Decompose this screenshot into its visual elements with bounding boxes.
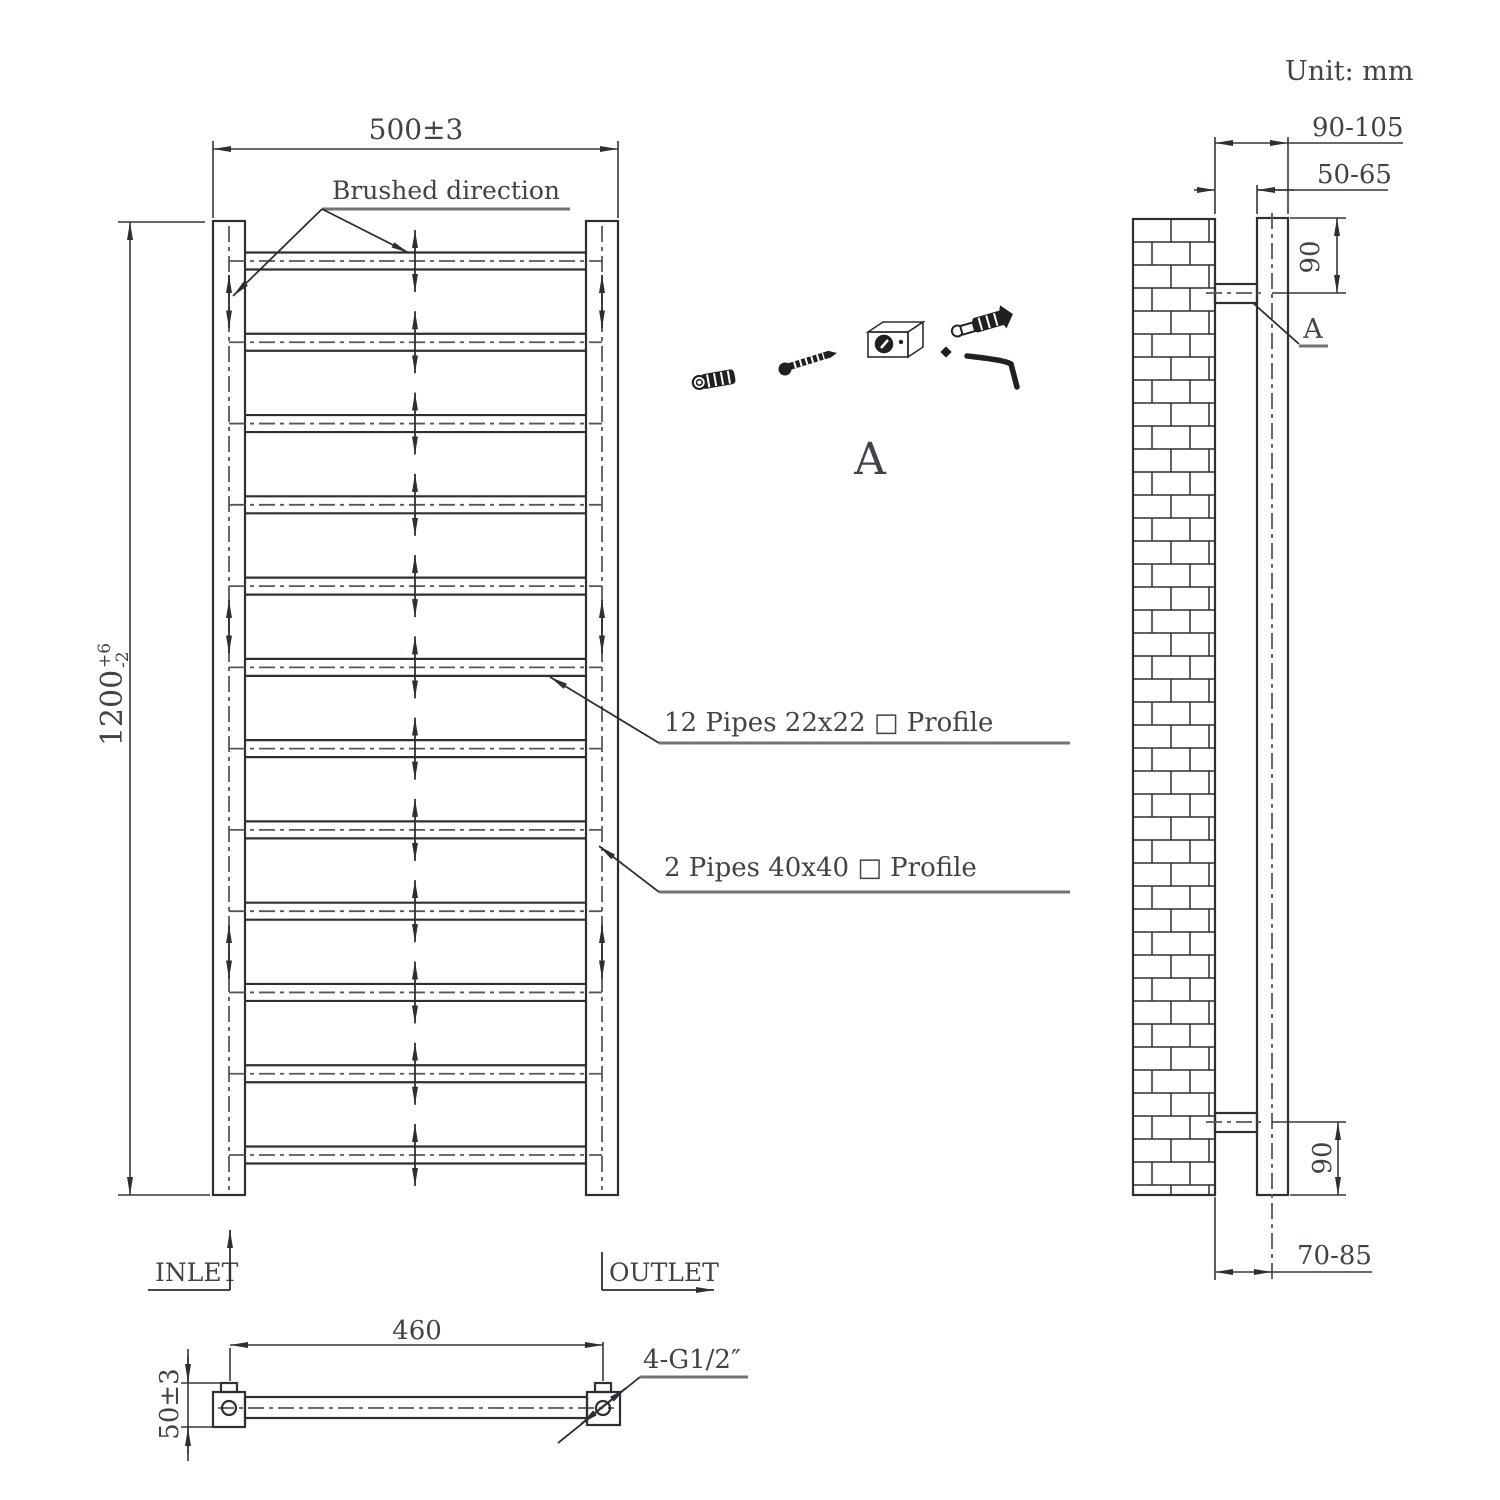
bottom-bracket-dimension: 90 — [1272, 1122, 1346, 1195]
bottom-view: 460 50±3 4-G1/2″ — [155, 1316, 748, 1461]
wall-to-center-dimension: 70-85 — [1215, 1197, 1372, 1280]
side-view: 90-105 50-65 90 90 70-85 — [1133, 113, 1404, 1283]
leader-line — [1253, 303, 1299, 344]
wall-section — [1133, 219, 1215, 1195]
unit-label: Unit: mm — [1285, 56, 1414, 87]
rungs-and-brush-arrows — [229, 230, 602, 1186]
screw-icon — [779, 351, 838, 376]
width-dim-text: 500±3 — [369, 113, 464, 146]
left-block-boss — [221, 1383, 237, 1392]
top-bracket-dim-text: 90 — [1296, 240, 1326, 273]
grub-screw-icon — [940, 346, 951, 357]
leader-arrow — [322, 209, 409, 253]
bottom-bracket-dim-text: 90 — [1308, 1141, 1338, 1174]
leader-arrow — [550, 677, 659, 743]
screw-anchor-icon — [949, 303, 1017, 344]
centers-dimension: 460 — [230, 1316, 603, 1381]
depth-dim-text: 50±3 — [155, 1368, 185, 1439]
leader-arrow — [599, 846, 659, 892]
bracket-block-icon — [868, 322, 923, 357]
wall-to-inner-dimension: 50-65 — [1194, 160, 1392, 214]
top-bracket-dimension: 90 — [1272, 218, 1346, 293]
inlet-annotation: INLET — [148, 1230, 239, 1290]
wall-to-inner-text: 50-65 — [1317, 160, 1392, 190]
rungs-label: 12 Pipes 22x22 □ Profile — [664, 708, 993, 738]
bottom-rail-tube — [245, 1397, 587, 1418]
rails-callout: 2 Pipes 40x40 □ Profile — [599, 846, 1070, 892]
detail-marker-callout: A — [1253, 303, 1328, 346]
wall-plug-icon — [692, 369, 736, 391]
outlet-annotation: OUTLET — [602, 1252, 719, 1290]
brushed-direction-label: Brushed direction — [332, 176, 560, 205]
rungs-callout: 12 Pipes 22x22 □ Profile — [550, 677, 1070, 743]
wall-to-center-text: 70-85 — [1297, 1241, 1372, 1271]
towel-radiator-technical-drawing: 500±3 1200 +6 -2 Brushed direction 12 Pi… — [0, 0, 1500, 1500]
wall-to-outer-text: 90-105 — [1312, 113, 1404, 143]
connections-label: 4-G1/2″ — [643, 1345, 741, 1375]
brushed-direction-callout: Brushed direction — [233, 176, 570, 296]
detail-a: A — [692, 303, 1017, 485]
inlet-label: INLET — [155, 1258, 239, 1287]
brick-hatch — [1133, 219, 1215, 1195]
allen-key-icon — [967, 356, 1017, 387]
height-dimension: 1200 +6 -2 — [95, 222, 210, 1195]
rails-label: 2 Pipes 40x40 □ Profile — [664, 853, 977, 883]
outlet-label: OUTLET — [609, 1258, 719, 1287]
height-dim-text: 1200 — [95, 670, 130, 746]
detail-marker-text: A — [1302, 314, 1323, 345]
left-connection-block — [213, 1392, 245, 1427]
front-view: 500±3 1200 +6 -2 Brushed direction 12 Pi… — [95, 113, 1070, 1290]
detail-a-label: A — [853, 434, 887, 485]
right-block-boss — [595, 1383, 611, 1392]
height-dim-tol-minus: -2 — [113, 651, 133, 668]
centers-dim-text: 460 — [392, 1316, 442, 1346]
height-dim-tol-plus: +6 — [95, 643, 115, 668]
